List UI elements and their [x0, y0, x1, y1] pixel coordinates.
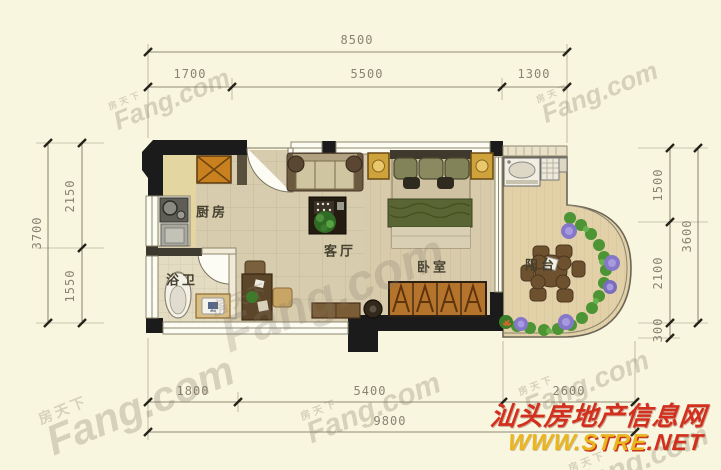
site-banner: 汕头房地产信息网 WWW.STRE.NET	[486, 403, 707, 454]
nightstand-left	[368, 153, 389, 179]
washing-machine	[504, 158, 540, 186]
tv-cabinet	[312, 300, 382, 318]
kitchen-counter	[158, 196, 190, 246]
nightstand-right	[471, 153, 493, 179]
dim-top-seg2: 5500	[351, 67, 384, 81]
kitchen-cabinet	[197, 156, 231, 183]
dim-bottom-seg1: 1800	[177, 384, 210, 398]
dim-left-seg2: 1550	[63, 270, 77, 303]
floorplan-image: 8500 1700 5500 1300 3700 2150 1550 1500 …	[0, 0, 721, 470]
table-item	[337, 202, 344, 210]
site-banner-url: WWW.STRE.NET	[486, 431, 704, 454]
room-label-living: 客厅	[324, 241, 356, 260]
stove-burner-icon	[163, 201, 177, 215]
balcony-top-wall	[503, 146, 567, 156]
coffee-table	[309, 197, 346, 234]
dim-right-seg3: 300	[651, 318, 665, 343]
bed	[388, 150, 472, 248]
room-label-bedroom: 卧室	[417, 257, 449, 276]
room-label-bath: 浴卫	[166, 270, 198, 289]
dim-bottom-seg2: 5400	[354, 384, 387, 398]
dim-bottom-overall: 9800	[374, 414, 407, 428]
dim-left-seg1: 2150	[63, 180, 77, 213]
bathroom-vanity	[196, 294, 230, 318]
plant-icon	[246, 291, 258, 303]
site-banner-name: 汕头房地产信息网	[489, 403, 708, 430]
wardrobe	[389, 282, 486, 316]
dim-right-overall: 3600	[680, 220, 694, 253]
dim-bottom-seg3: 2600	[553, 384, 586, 398]
dim-right-seg2: 2100	[651, 257, 665, 290]
washbasin-icon	[208, 302, 218, 309]
room-label-kitchen: 厨房	[196, 202, 228, 221]
dim-top-seg1: 1700	[174, 67, 207, 81]
room-label-balcony: 阳台	[525, 255, 557, 274]
dim-left-overall: 3700	[30, 217, 44, 250]
dim-top-seg3: 1300	[518, 67, 551, 81]
stove-burner-icon	[177, 211, 185, 219]
sofa	[287, 153, 363, 191]
dim-right-seg1: 1500	[651, 169, 665, 202]
dim-top-overall: 8500	[341, 33, 374, 47]
